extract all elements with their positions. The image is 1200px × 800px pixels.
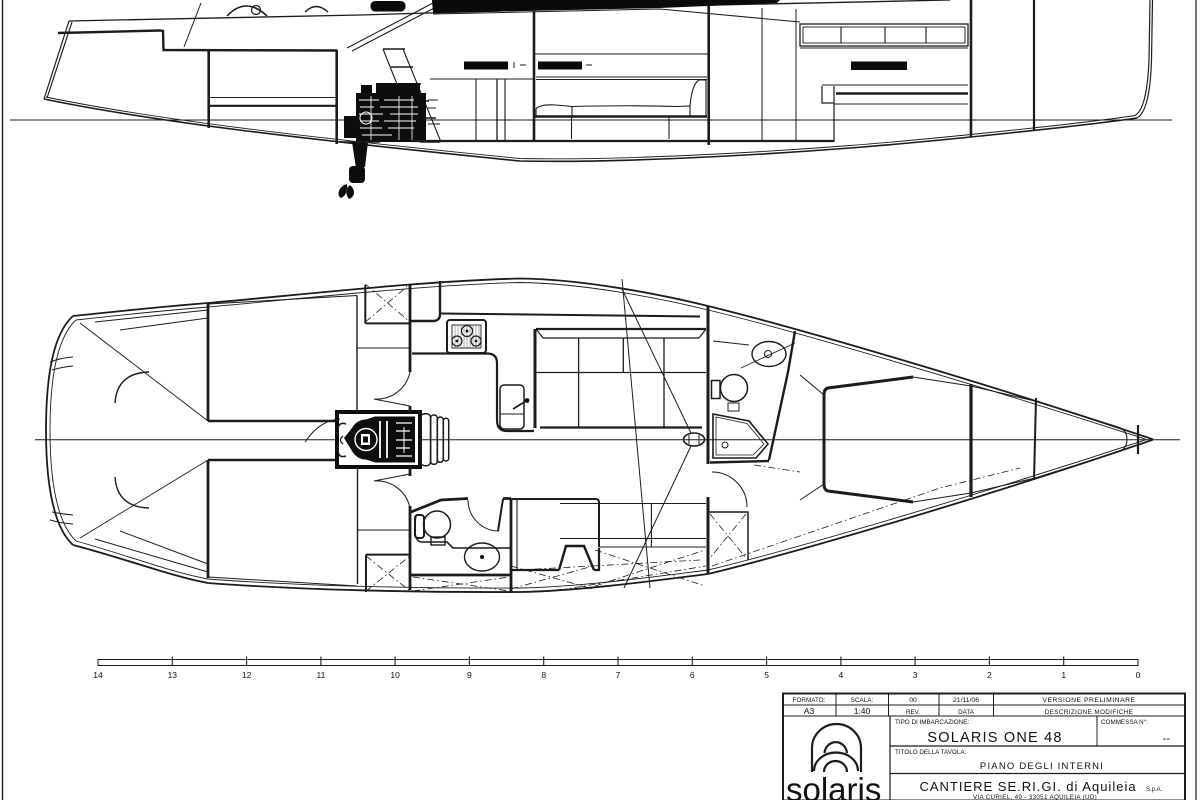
- svg-text:VIA CURIEL, 49 - 33051 AQUILEI: VIA CURIEL, 49 - 33051 AQUILEIA (UD): [973, 794, 1097, 800]
- svg-text:7: 7: [616, 670, 621, 680]
- svg-text:PIANO DEGLI INTERNI: PIANO DEGLI INTERNI: [980, 761, 1104, 772]
- svg-text:3: 3: [913, 670, 918, 680]
- svg-text:REV.: REV.: [906, 709, 920, 716]
- svg-text:DESCRIZIONE MODIFICHE: DESCRIZIONE MODIFICHE: [1045, 709, 1134, 716]
- svg-text:COMMESSA N°:: COMMESSA N°:: [1101, 718, 1148, 726]
- svg-text:2: 2: [987, 670, 992, 680]
- svg-text:CANTIERE SE.RI.GI. di Aquileia: CANTIERE SE.RI.GI. di Aquileia: [919, 779, 1136, 794]
- svg-text:9: 9: [467, 670, 472, 680]
- svg-text:13: 13: [168, 670, 178, 680]
- svg-text:14: 14: [93, 670, 103, 680]
- svg-text:--: --: [1163, 733, 1171, 745]
- svg-text:00: 00: [909, 697, 917, 704]
- svg-text:S.p.A.: S.p.A.: [1146, 787, 1163, 793]
- svg-text:6: 6: [690, 670, 695, 680]
- svg-text:TITOLO DELLA TAVOLA:: TITOLO DELLA TAVOLA:: [895, 749, 967, 756]
- svg-text:10: 10: [390, 670, 400, 680]
- svg-text:TIPO DI IMBARCAZIONE:: TIPO DI IMBARCAZIONE:: [895, 719, 969, 726]
- svg-text:1: 1: [1061, 670, 1066, 680]
- svg-text:0: 0: [1136, 670, 1141, 680]
- svg-text:SOLARIS ONE 48: SOLARIS ONE 48: [927, 730, 1062, 746]
- svg-text:1:40: 1:40: [854, 706, 871, 716]
- svg-text:FORMATO:: FORMATO:: [793, 697, 826, 704]
- svg-text:A3: A3: [804, 706, 815, 716]
- svg-text:12: 12: [242, 670, 252, 680]
- svg-text:21/11/06: 21/11/06: [953, 697, 979, 704]
- svg-text:VERSIONE PRELIMINARE: VERSIONE PRELIMINARE: [1042, 697, 1135, 704]
- svg-text:solaris: solaris: [786, 771, 881, 800]
- svg-text:5: 5: [764, 670, 769, 680]
- svg-text:4: 4: [839, 670, 844, 680]
- svg-text:8: 8: [541, 670, 546, 680]
- svg-text:11: 11: [316, 670, 325, 680]
- svg-text:SCALA:: SCALA:: [851, 697, 874, 704]
- svg-text:DATA: DATA: [958, 709, 975, 716]
